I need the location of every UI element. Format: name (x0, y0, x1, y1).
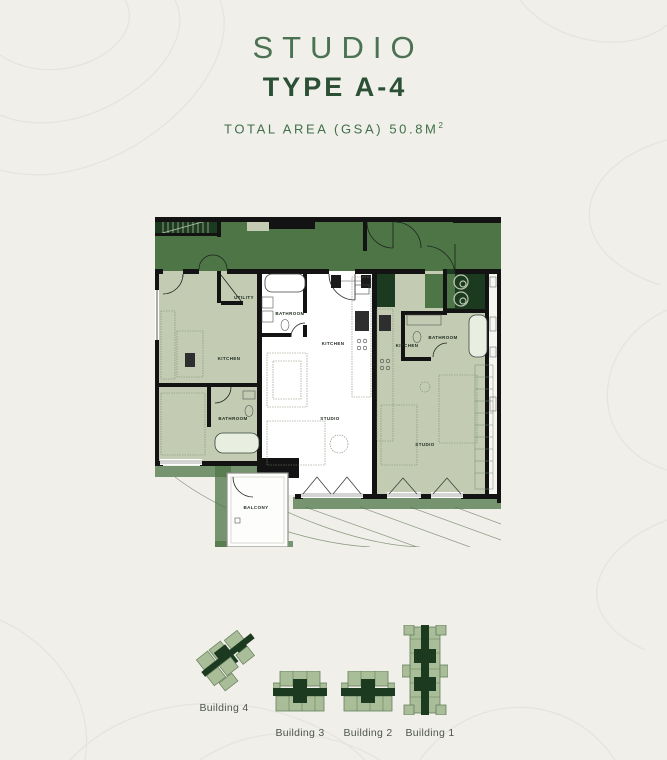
building-2-footprint-icon (341, 671, 395, 713)
room-label-bathroom-right: BATHROOM (428, 335, 457, 340)
entry-nook-region (375, 271, 395, 307)
room-label-bathroom-left: BATHROOM (218, 416, 247, 421)
building-4-footprint-icon (196, 620, 266, 698)
floorplan-drawing: UTILITY KITCHEN BATHROOM BATHROOM KITCHE… (155, 215, 501, 547)
plan-type-title: TYPE A-4 (0, 72, 667, 103)
bathtub-icon-center (265, 274, 305, 292)
building-4-label: Building 4 (199, 702, 248, 714)
right-entry-alcove (425, 274, 455, 308)
plan-header: STUDIO TYPE A-4 TOTAL AREA (GSA) 50.8M2 (0, 30, 667, 136)
room-label-balcony: BALCONY (243, 505, 268, 510)
building-3-footprint-icon (273, 671, 327, 713)
building-1-footprint-icon (402, 625, 448, 715)
bathtub-icon-left (215, 433, 259, 453)
room-label-kitchen-center: KITCHEN (322, 341, 345, 346)
room-label-studio-right: STUDIO (415, 442, 434, 447)
building-3-label: Building 3 (275, 727, 324, 739)
room-label-kitchen-right: KITCHEN (396, 343, 419, 348)
room-label-utility: UTILITY (234, 295, 254, 300)
stove-icon-center (355, 311, 369, 331)
building-2-label: Building 2 (343, 727, 392, 739)
total-area-value: TOTAL AREA (GSA) 50.8M (224, 121, 438, 136)
total-area-text: TOTAL AREA (GSA) 50.8M2 (0, 121, 667, 136)
room-label-bathroom-center: BATHROOM (275, 311, 304, 316)
page-title: STUDIO (0, 30, 667, 66)
total-area-superscript: 2 (439, 121, 443, 130)
stove-icon-right (379, 315, 391, 331)
room-label-studio-center: STUDIO (320, 416, 339, 421)
stove-icon-left (185, 353, 195, 367)
room-label-kitchen-left: KITCHEN (218, 356, 241, 361)
building-1-label: Building 1 (405, 727, 454, 739)
bathtub-icon-right (469, 315, 487, 357)
balcony (227, 473, 288, 547)
